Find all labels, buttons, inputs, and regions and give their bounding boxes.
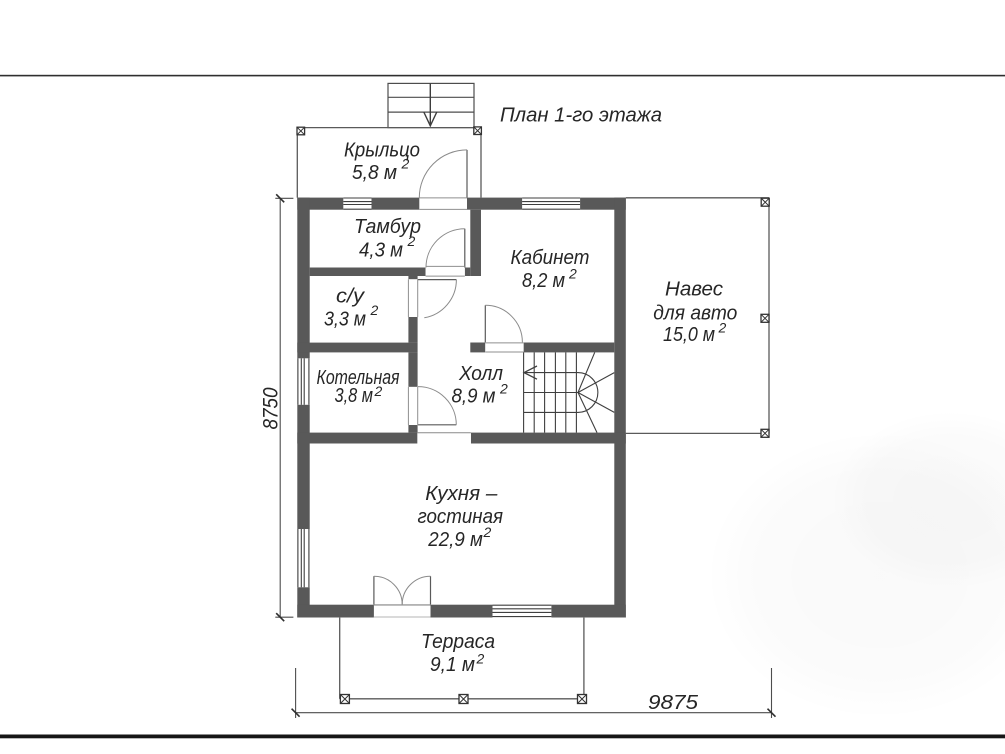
svg-text:Кухня –: Кухня – [425,482,498,505]
svg-text:3,3 м: 3,3 м [324,308,366,331]
svg-text:9,1 м: 9,1 м [430,653,475,676]
svg-text:9875: 9875 [648,691,699,714]
svg-text:5,8 м: 5,8 м [352,161,397,184]
svg-text:Холл: Холл [458,362,503,385]
svg-text:2: 2 [568,266,577,282]
svg-text:2: 2 [483,524,492,540]
svg-text:22,9 м: 22,9 м [427,528,482,551]
svg-text:Навес: Навес [665,278,724,301]
svg-text:2: 2 [401,156,410,172]
svg-text:2: 2 [718,320,727,336]
svg-text:8750: 8750 [260,387,283,429]
svg-text:3,8 м: 3,8 м [335,384,374,407]
svg-text:2: 2 [374,383,383,399]
svg-text:2: 2 [407,233,416,249]
svg-text:4,3 м: 4,3 м [359,239,403,262]
svg-text:2: 2 [370,302,379,318]
svg-text:План 1-го этажа: План 1-го этажа [500,104,662,127]
svg-text:2: 2 [499,381,508,397]
svg-text:Кабинет: Кабинет [511,246,590,269]
svg-text:8,9 м: 8,9 м [452,385,496,408]
svg-text:с/у: с/у [336,285,366,308]
svg-text:8,2 м: 8,2 м [522,269,565,292]
svg-text:2: 2 [476,651,485,667]
svg-text:15,0 м: 15,0 м [663,323,715,346]
